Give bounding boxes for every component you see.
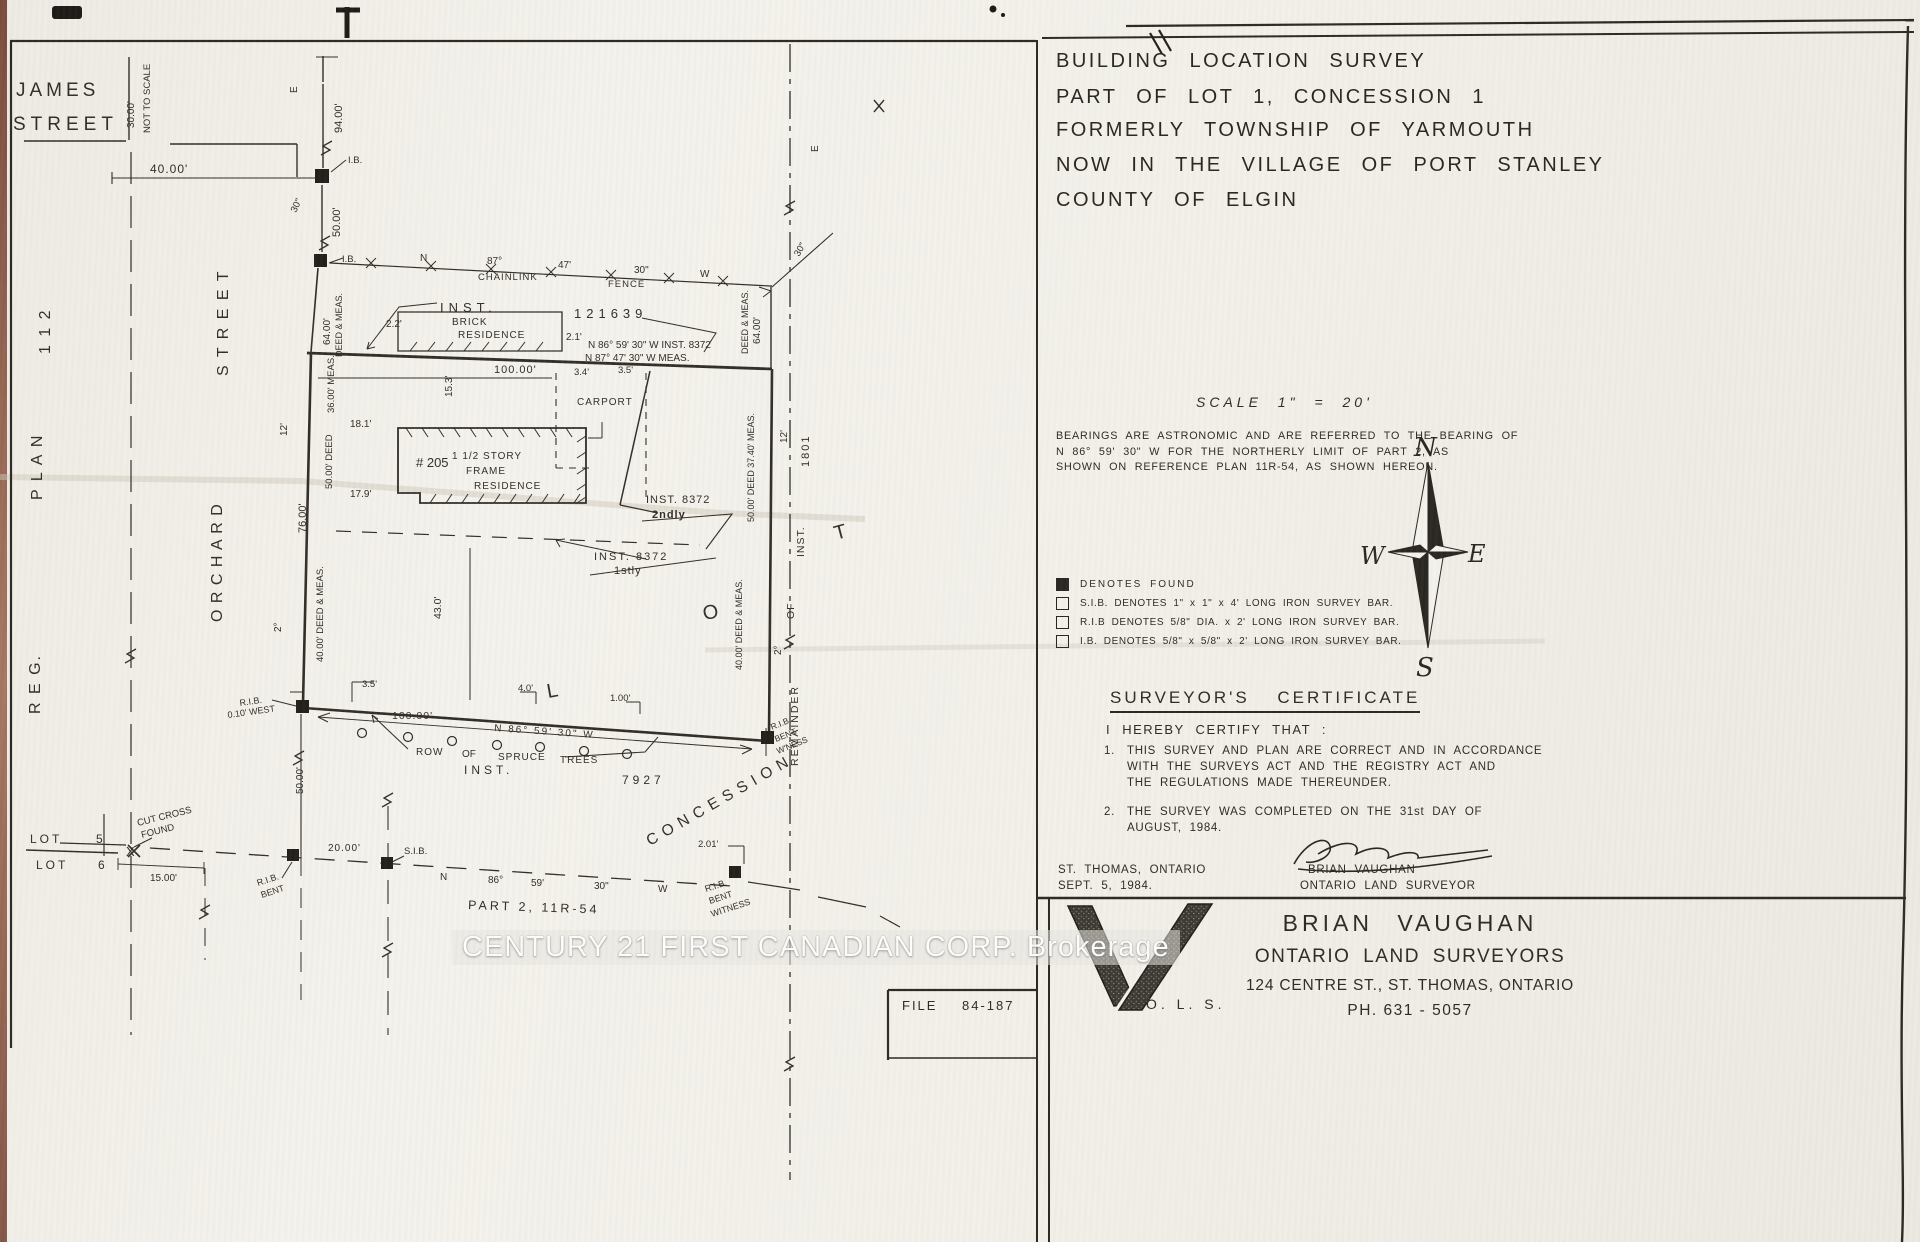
plan-label: N	[420, 253, 427, 264]
plan-label: REMAINDER	[789, 685, 801, 766]
firm-name: BRIAN VAUGHAN	[1230, 910, 1590, 937]
plan-label: 12'	[779, 430, 790, 443]
plan-label: 2ndly	[652, 509, 686, 521]
plan-label: 3.4'	[574, 367, 589, 378]
legend-item: DENOTES FOUND	[1080, 579, 1196, 590]
plan-label: 30"	[792, 241, 809, 259]
plan-label: C O N C E S S I O N	[644, 754, 793, 850]
legend-found-symbol	[1056, 578, 1069, 591]
plan-label: I.B.	[348, 155, 362, 166]
certificate-line: THE SURVEY WAS COMPLETED ON THE 31st DAY…	[1127, 806, 1482, 818]
signer-title: ONTARIO LAND SURVEYOR	[1300, 880, 1476, 892]
compass-s-label: S	[1416, 653, 1434, 683]
firm-phone: PH. 631 - 5057	[1180, 1002, 1640, 1020]
plan-label: 1 1 2	[37, 308, 54, 354]
plan-label: 2°	[273, 622, 284, 632]
certificate-date: SEPT. 5, 1984.	[1058, 880, 1153, 892]
plan-label: 6	[98, 858, 105, 872]
plan-label: INST. 8372	[594, 551, 668, 563]
plan-label: 50.00'	[331, 207, 343, 237]
plan-label: 1801	[800, 435, 812, 467]
plan-label: 1.00'	[610, 693, 630, 704]
plan-label: 40.00' DEED & MEAS.	[734, 579, 744, 670]
plan-label: INST.	[795, 526, 807, 557]
firm-address: 124 CENTRE ST., ST. THOMAS, ONTARIO	[1180, 977, 1640, 995]
plan-label: 12'	[279, 423, 290, 436]
plan-label: FRAME	[466, 466, 506, 477]
plan-label: P L A N	[29, 434, 46, 500]
scale-note: SCALE 1" = 20'	[1196, 394, 1373, 410]
bearings-note-line: BEARINGS ARE ASTRONOMIC AND ARE REFERRED…	[1056, 430, 1518, 442]
plan-label: S T R E E T	[215, 270, 232, 376]
plan-label: 87°	[487, 256, 502, 267]
survey-sheet: JAMESSTREET30.00'NOT TO SCALER E G.P L A…	[0, 0, 1920, 1242]
compass-e-label: E	[1467, 540, 1486, 568]
plan-label: 30.00'	[126, 101, 137, 128]
plan-label: CHAINLINK	[478, 272, 538, 283]
plan-label: 121639	[574, 306, 647, 321]
certificate-place: ST. THOMAS, ONTARIO	[1058, 864, 1206, 876]
plan-label: 15.3'	[444, 376, 455, 397]
plan-label: N	[440, 872, 447, 883]
certificate-intro: I HEREBY CERTIFY THAT :	[1106, 722, 1327, 737]
bearings-note-line: SHOWN ON REFERENCE PLAN 11R-54, AS SHOWN…	[1056, 461, 1438, 473]
certificate-line: WITH THE SURVEYS ACT AND THE REGISTRY AC…	[1127, 761, 1496, 773]
certificate-line: THE REGULATIONS MADE THEREUNDER.	[1127, 777, 1392, 789]
plan-label: 30"	[289, 197, 305, 214]
plan-label: DEED & MEAS.	[740, 290, 750, 354]
plan-label: 36.00' MEAS.	[326, 355, 337, 413]
plan-label: OF	[462, 749, 476, 760]
plan-label: O R C H A R D	[209, 503, 226, 622]
plan-label: S.I.B.	[404, 846, 427, 857]
plan-label: 2°	[773, 645, 784, 655]
certificate-item-number: 2.	[1104, 806, 1115, 818]
plan-label: 86°	[488, 875, 503, 886]
plan-label: 50.00' DEED 37.40' MEAS.	[746, 413, 756, 522]
plan-label: JAMES	[16, 80, 99, 101]
plan-label: 64.00'	[752, 317, 763, 344]
title-line: NOW IN THE VILLAGE OF PORT STANLEY	[1056, 154, 1605, 177]
plan-label: W	[658, 884, 668, 895]
plan-label: FENCE	[608, 279, 645, 290]
plan-label: LOT	[30, 832, 62, 846]
plan-label: 50.00' DEED	[324, 434, 335, 489]
brokerage-watermark: CENTURY 21 FIRST CANADIAN CORP. Brokerag…	[452, 930, 1180, 965]
certificate-line: AUGUST, 1984.	[1127, 822, 1222, 834]
survey-plan-drawing: JAMESSTREET30.00'NOT TO SCALER E G.P L A…	[0, 0, 1920, 1242]
plan-label: ROW	[416, 747, 443, 758]
plan-label: 3.5'	[362, 679, 377, 690]
plan-label: I.B.	[342, 254, 356, 265]
plan-label: DEED & MEAS.	[334, 293, 344, 357]
plan-label: 59'	[531, 878, 544, 889]
signer-name: BRIAN VAUGHAN	[1308, 864, 1415, 876]
plan-label: 64.00'	[322, 318, 333, 345]
plan-label: 3.5'	[618, 365, 633, 376]
plan-label: PART 2, 11R-54	[468, 898, 600, 917]
plan-label: BRICK	[452, 317, 488, 328]
plan-label: 100.00'	[494, 364, 537, 376]
plan-label: LOT	[36, 858, 68, 872]
plan-label: N 86° 59' 30" W INST. 8372	[588, 340, 711, 351]
certificate-item-number: 1.	[1104, 745, 1115, 757]
plan-label: CARPORT	[577, 397, 633, 408]
plan-label: N 87° 47' 30" W MEAS.	[585, 353, 690, 364]
plan-label: 1stly	[614, 565, 642, 577]
title-line: BUILDING LOCATION SURVEY	[1056, 50, 1426, 73]
plan-label: INST.	[440, 300, 497, 315]
plan-label: 47'	[558, 260, 571, 271]
plan-label: 30"	[594, 881, 609, 892]
plan-label: X	[126, 844, 135, 859]
scan-artifacts	[52, 6, 1171, 113]
plan-label: L	[545, 679, 560, 703]
bearings-note-line: N 86° 59' 30" W FOR THE NORTHERLY LIMIT …	[1056, 446, 1449, 458]
plan-label: E	[810, 145, 821, 152]
plan-label: 2.01'	[698, 839, 718, 850]
plan-label: INST. 8372	[646, 494, 710, 506]
plan-label: 30"	[634, 265, 649, 276]
plan-label: 94.00'	[333, 103, 345, 133]
plan-label: 15.00'	[150, 873, 177, 884]
plan-label: STREET	[13, 114, 118, 135]
plan-label: O	[701, 601, 720, 625]
legend-item: R.I.B DENOTES 5/8" DIA. x 2' LONG IRON S…	[1080, 617, 1399, 628]
plan-label: SPRUCE	[498, 752, 546, 763]
legend-sib-symbol	[1056, 597, 1069, 610]
plan-label: OF	[785, 602, 797, 619]
file-label: FILE	[902, 998, 937, 1013]
legend-rib-symbol	[1056, 616, 1069, 629]
plan-label: RESIDENCE	[474, 481, 541, 492]
plan-label: 1 1/2 STORY	[452, 451, 522, 462]
legend-item: I.B. DENOTES 5/8" x 5/8" x 2' LONG IRON …	[1080, 636, 1402, 647]
file-number: 84-187	[962, 998, 1014, 1013]
plan-label: N 86° 59' 30" W	[494, 723, 595, 741]
certificate-line: THIS SURVEY AND PLAN ARE CORRECT AND IN …	[1127, 745, 1542, 757]
plan-label: W	[700, 269, 710, 280]
plan-label: 18.1'	[350, 419, 371, 430]
plan-label: 4.0'	[518, 683, 533, 694]
plan-label: 100.00'	[392, 710, 433, 722]
legend-item: S.I.B. DENOTES 1" x 1" x 4' LONG IRON SU…	[1080, 598, 1393, 609]
plan-label: R E G.	[27, 654, 44, 714]
compass-rose-icon	[1388, 462, 1468, 648]
plan-label: 40.00'	[150, 162, 188, 176]
plan-label: 17.9'	[350, 489, 371, 500]
plan-label: NOT TO SCALE	[142, 64, 153, 133]
plan-label: 0.10' WEST	[227, 703, 276, 720]
title-line: FORMERLY TOWNSHIP OF YARMOUTH	[1056, 119, 1535, 142]
plan-label: INST.	[464, 763, 513, 777]
legend-ib-symbol	[1056, 635, 1069, 648]
firm-subtitle: ONTARIO LAND SURVEYORS	[1210, 946, 1610, 968]
plan-label: TREES	[560, 755, 598, 766]
plan-label: 40.00' DEED & MEAS.	[315, 566, 326, 662]
plan-label: # 205	[416, 455, 449, 470]
title-line: COUNTY OF ELGIN	[1056, 189, 1299, 212]
plan-label: 20.00'	[328, 843, 361, 854]
plan-linework	[24, 44, 900, 1180]
plan-label: 50.00'	[295, 767, 306, 794]
plan-label: E	[289, 86, 300, 93]
plan-label: 2.2'	[386, 319, 402, 330]
plan-label: 7927	[622, 773, 665, 787]
plan-label: 43.0'	[432, 597, 444, 619]
compass-w-label: W	[1360, 542, 1387, 570]
plan-label: 76.00'	[297, 503, 309, 533]
plan-label: 2.1'	[566, 332, 582, 343]
title-line: PART OF LOT 1, CONCESSION 1	[1056, 86, 1486, 109]
plan-label: 5	[96, 832, 103, 846]
plan-label: T	[832, 520, 849, 544]
certificate-heading: SURVEYOR'S CERTIFICATE	[1110, 688, 1420, 713]
plan-label: RESIDENCE	[458, 330, 525, 341]
